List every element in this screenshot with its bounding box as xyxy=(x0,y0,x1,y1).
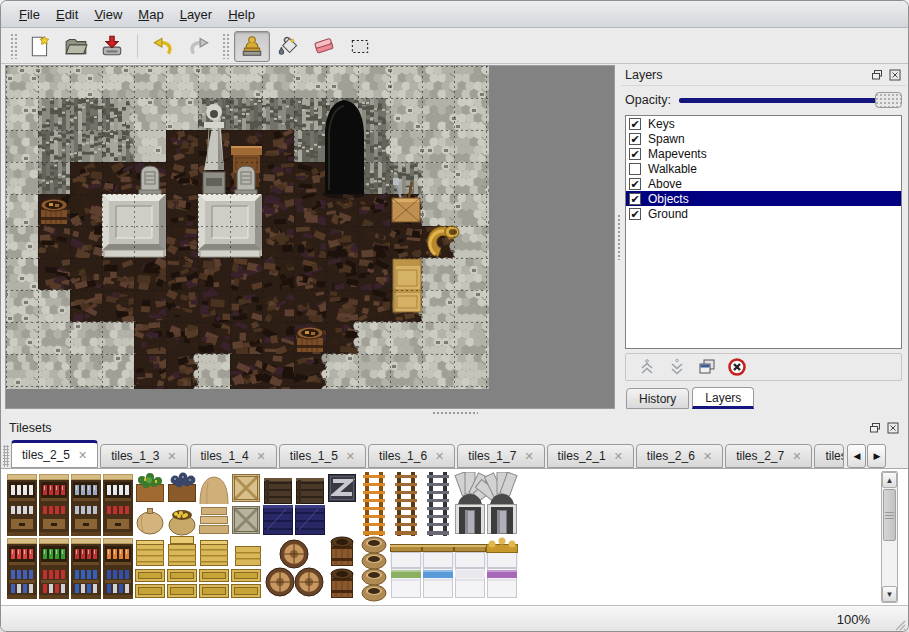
tab-label: tiles_1_6 xyxy=(379,449,427,463)
status-bar: 100% xyxy=(1,605,908,632)
close-icon xyxy=(889,69,901,81)
tab-label: tiles_2_5 xyxy=(22,448,70,462)
undo-icon xyxy=(151,34,175,58)
splitter-grip xyxy=(432,411,478,416)
menu-edit[interactable]: Edit xyxy=(48,4,86,25)
opacity-label: Opacity: xyxy=(625,93,671,107)
scrollbar-thumb[interactable] xyxy=(883,489,896,541)
tileset-tab[interactable]: tiles_1_6✕ xyxy=(368,444,455,468)
close-tab-icon[interactable]: ✕ xyxy=(524,450,533,463)
redo-button[interactable] xyxy=(181,31,217,62)
layer-checkbox[interactable]: ✔ xyxy=(629,118,641,130)
layer-row-above[interactable]: ✔ Above xyxy=(626,176,901,191)
tab-label: tiles_2_6 xyxy=(647,449,695,463)
delete-layer-button[interactable] xyxy=(722,355,752,379)
layer-checkbox[interactable]: ✔ xyxy=(629,178,641,190)
toolbar-grip[interactable] xyxy=(222,33,229,59)
layer-row-walkable[interactable]: Walkable xyxy=(626,161,901,176)
opacity-row: Opacity: xyxy=(621,86,906,113)
tileset-tab-bar: tiles_2_5✕ tiles_1_3✕ tiles_1_4✕ tiles_1… xyxy=(1,439,908,468)
stamp-tool-button[interactable] xyxy=(234,31,270,62)
close-tab-icon[interactable]: ✕ xyxy=(792,450,801,463)
raise-layer-button[interactable] xyxy=(632,355,662,379)
tilesets-panel: Tilesets tiles_2_5✕ tiles_1_3✕ tiles_1_4… xyxy=(1,417,908,632)
undo-button[interactable] xyxy=(145,31,181,62)
duplicate-layer-button[interactable] xyxy=(692,355,722,379)
close-tab-icon[interactable]: ✕ xyxy=(703,450,712,463)
tilesets-titlebar: Tilesets xyxy=(1,417,908,439)
close-icon xyxy=(887,422,899,434)
layer-checkbox[interactable] xyxy=(629,163,641,175)
tileset-tab[interactable]: tiles_1_4✕ xyxy=(190,444,277,468)
layer-checkbox[interactable]: ✔ xyxy=(629,208,641,220)
menu-bar: File Edit View Map Layer Help xyxy=(1,1,908,28)
zoom-level: 100% xyxy=(837,612,870,627)
tab-label: tiles_1_3 xyxy=(111,449,159,463)
map-viewport[interactable] xyxy=(5,65,615,409)
scroll-up-button[interactable]: ▲ xyxy=(882,472,897,488)
close-panel-button[interactable] xyxy=(888,68,902,82)
tileset-tab[interactable]: tiles_1_3✕ xyxy=(100,444,187,468)
layer-row-objects[interactable]: ✔ Objects xyxy=(626,191,901,206)
layer-label: Objects xyxy=(648,192,689,206)
open-map-button[interactable] xyxy=(58,31,94,62)
close-tab-icon[interactable]: ✕ xyxy=(167,450,176,463)
layer-label: Mapevents xyxy=(648,147,707,161)
layers-dock: Layers Opacity: ✔ xyxy=(621,65,906,409)
raise-layer-icon xyxy=(637,357,657,377)
app-window: File Edit View Map Layer Help xyxy=(0,0,909,632)
layer-label: Walkable xyxy=(648,162,697,176)
fill-tool-icon xyxy=(276,34,300,58)
tileset-canvas[interactable] xyxy=(6,472,518,602)
select-tool-button[interactable] xyxy=(342,31,378,62)
tileset-tab-truncated[interactable]: tiles_ xyxy=(814,444,844,468)
tab-scroll-right-button[interactable]: ▶ xyxy=(867,444,886,468)
stamp-tool-icon xyxy=(240,34,264,58)
close-tab-icon[interactable]: ✕ xyxy=(614,450,623,463)
main-toolbar xyxy=(1,29,908,64)
layer-row-keys[interactable]: ✔ Keys xyxy=(626,116,901,131)
layer-checkbox[interactable]: ✔ xyxy=(629,148,641,160)
tilesets-title: Tilesets xyxy=(9,421,864,435)
fill-tool-button[interactable] xyxy=(270,31,306,62)
tab-layers[interactable]: Layers xyxy=(692,387,754,409)
menu-file[interactable]: File xyxy=(11,4,48,25)
menu-map[interactable]: Map xyxy=(130,4,171,25)
toolbar-separator xyxy=(137,34,138,58)
float-icon xyxy=(869,422,881,434)
open-folder-icon xyxy=(64,34,88,58)
select-tool-icon xyxy=(348,34,372,58)
layer-label: Keys xyxy=(648,117,675,131)
save-icon xyxy=(100,34,124,58)
tileset-tab[interactable]: tiles_2_7✕ xyxy=(725,444,812,468)
opacity-slider-handle[interactable] xyxy=(875,92,902,108)
layer-checkbox[interactable]: ✔ xyxy=(629,193,641,205)
layer-list[interactable]: ✔ Keys ✔ Spawn ✔ Mapevents Walkable ✔ Ab… xyxy=(625,115,902,349)
delete-layer-icon xyxy=(727,357,747,377)
layer-checkbox[interactable]: ✔ xyxy=(629,133,641,145)
new-map-button[interactable] xyxy=(22,31,58,62)
opacity-slider[interactable] xyxy=(679,91,902,109)
dock-tab-bar: History Layers xyxy=(621,383,906,409)
tab-label: tiles_2_1 xyxy=(558,449,606,463)
layer-row-ground[interactable]: ✔ Ground xyxy=(626,206,901,221)
close-tab-icon[interactable]: ✕ xyxy=(257,450,266,463)
resize-grip[interactable] xyxy=(892,617,906,631)
eraser-tool-button[interactable] xyxy=(306,31,342,62)
close-tab-icon[interactable]: ✕ xyxy=(346,450,355,463)
tileset-scrollbar[interactable]: ▲ ▼ xyxy=(881,471,898,603)
layer-label: Ground xyxy=(648,207,688,221)
close-tab-icon[interactable]: ✕ xyxy=(435,450,444,463)
tab-label: tiles_1_4 xyxy=(201,449,249,463)
close-panel-button[interactable] xyxy=(886,421,900,435)
toolbar-grip[interactable] xyxy=(10,33,17,59)
menu-view[interactable]: View xyxy=(86,4,130,25)
tab-history[interactable]: History xyxy=(626,388,689,409)
tileset-tab[interactable]: tiles_2_6✕ xyxy=(636,444,723,468)
duplicate-layer-icon xyxy=(697,357,717,377)
scroll-down-button[interactable]: ▼ xyxy=(882,586,897,602)
float-panel-button[interactable] xyxy=(870,68,884,82)
layers-dock-title: Layers xyxy=(625,68,866,82)
layers-dock-titlebar: Layers xyxy=(621,65,906,86)
float-panel-button[interactable] xyxy=(868,421,882,435)
new-file-icon xyxy=(28,34,52,58)
redo-icon xyxy=(187,34,211,58)
layer-row-mapevents[interactable]: ✔ Mapevents xyxy=(626,146,901,161)
menu-layer[interactable]: Layer xyxy=(172,4,221,25)
tileset-tab[interactable]: tiles_1_7✕ xyxy=(457,444,544,468)
horizontal-splitter[interactable] xyxy=(1,409,908,417)
save-map-button[interactable] xyxy=(94,31,130,62)
lower-layer-icon xyxy=(667,357,687,377)
scrollbar-track[interactable] xyxy=(882,542,897,586)
tileset-tab[interactable]: tiles_1_5✕ xyxy=(279,444,366,468)
tileset-view[interactable]: ▲ ▼ xyxy=(1,468,908,605)
menu-help[interactable]: Help xyxy=(220,4,263,25)
lower-layer-button[interactable] xyxy=(662,355,692,379)
tab-scroll-left-button[interactable]: ◀ xyxy=(847,444,866,468)
opacity-slider-track xyxy=(679,98,902,103)
tileset-tab[interactable]: tiles_2_1✕ xyxy=(547,444,634,468)
close-tab-icon[interactable]: ✕ xyxy=(78,449,87,462)
eraser-tool-icon xyxy=(312,34,336,58)
layer-row-spawn[interactable]: ✔ Spawn xyxy=(626,131,901,146)
tab-label: tiles_ xyxy=(825,449,844,463)
float-icon xyxy=(871,69,883,81)
layer-label: Above xyxy=(648,177,682,191)
layer-actions-toolbar xyxy=(625,353,902,381)
tab-label: tiles_2_7 xyxy=(736,449,784,463)
map-canvas[interactable] xyxy=(6,66,489,389)
tab-label: tiles_1_7 xyxy=(468,449,516,463)
tab-label: tiles_1_5 xyxy=(290,449,338,463)
tileset-tab[interactable]: tiles_2_5✕ xyxy=(11,440,98,468)
tab-bar-grip[interactable] xyxy=(3,445,9,467)
layer-label: Spawn xyxy=(648,132,685,146)
